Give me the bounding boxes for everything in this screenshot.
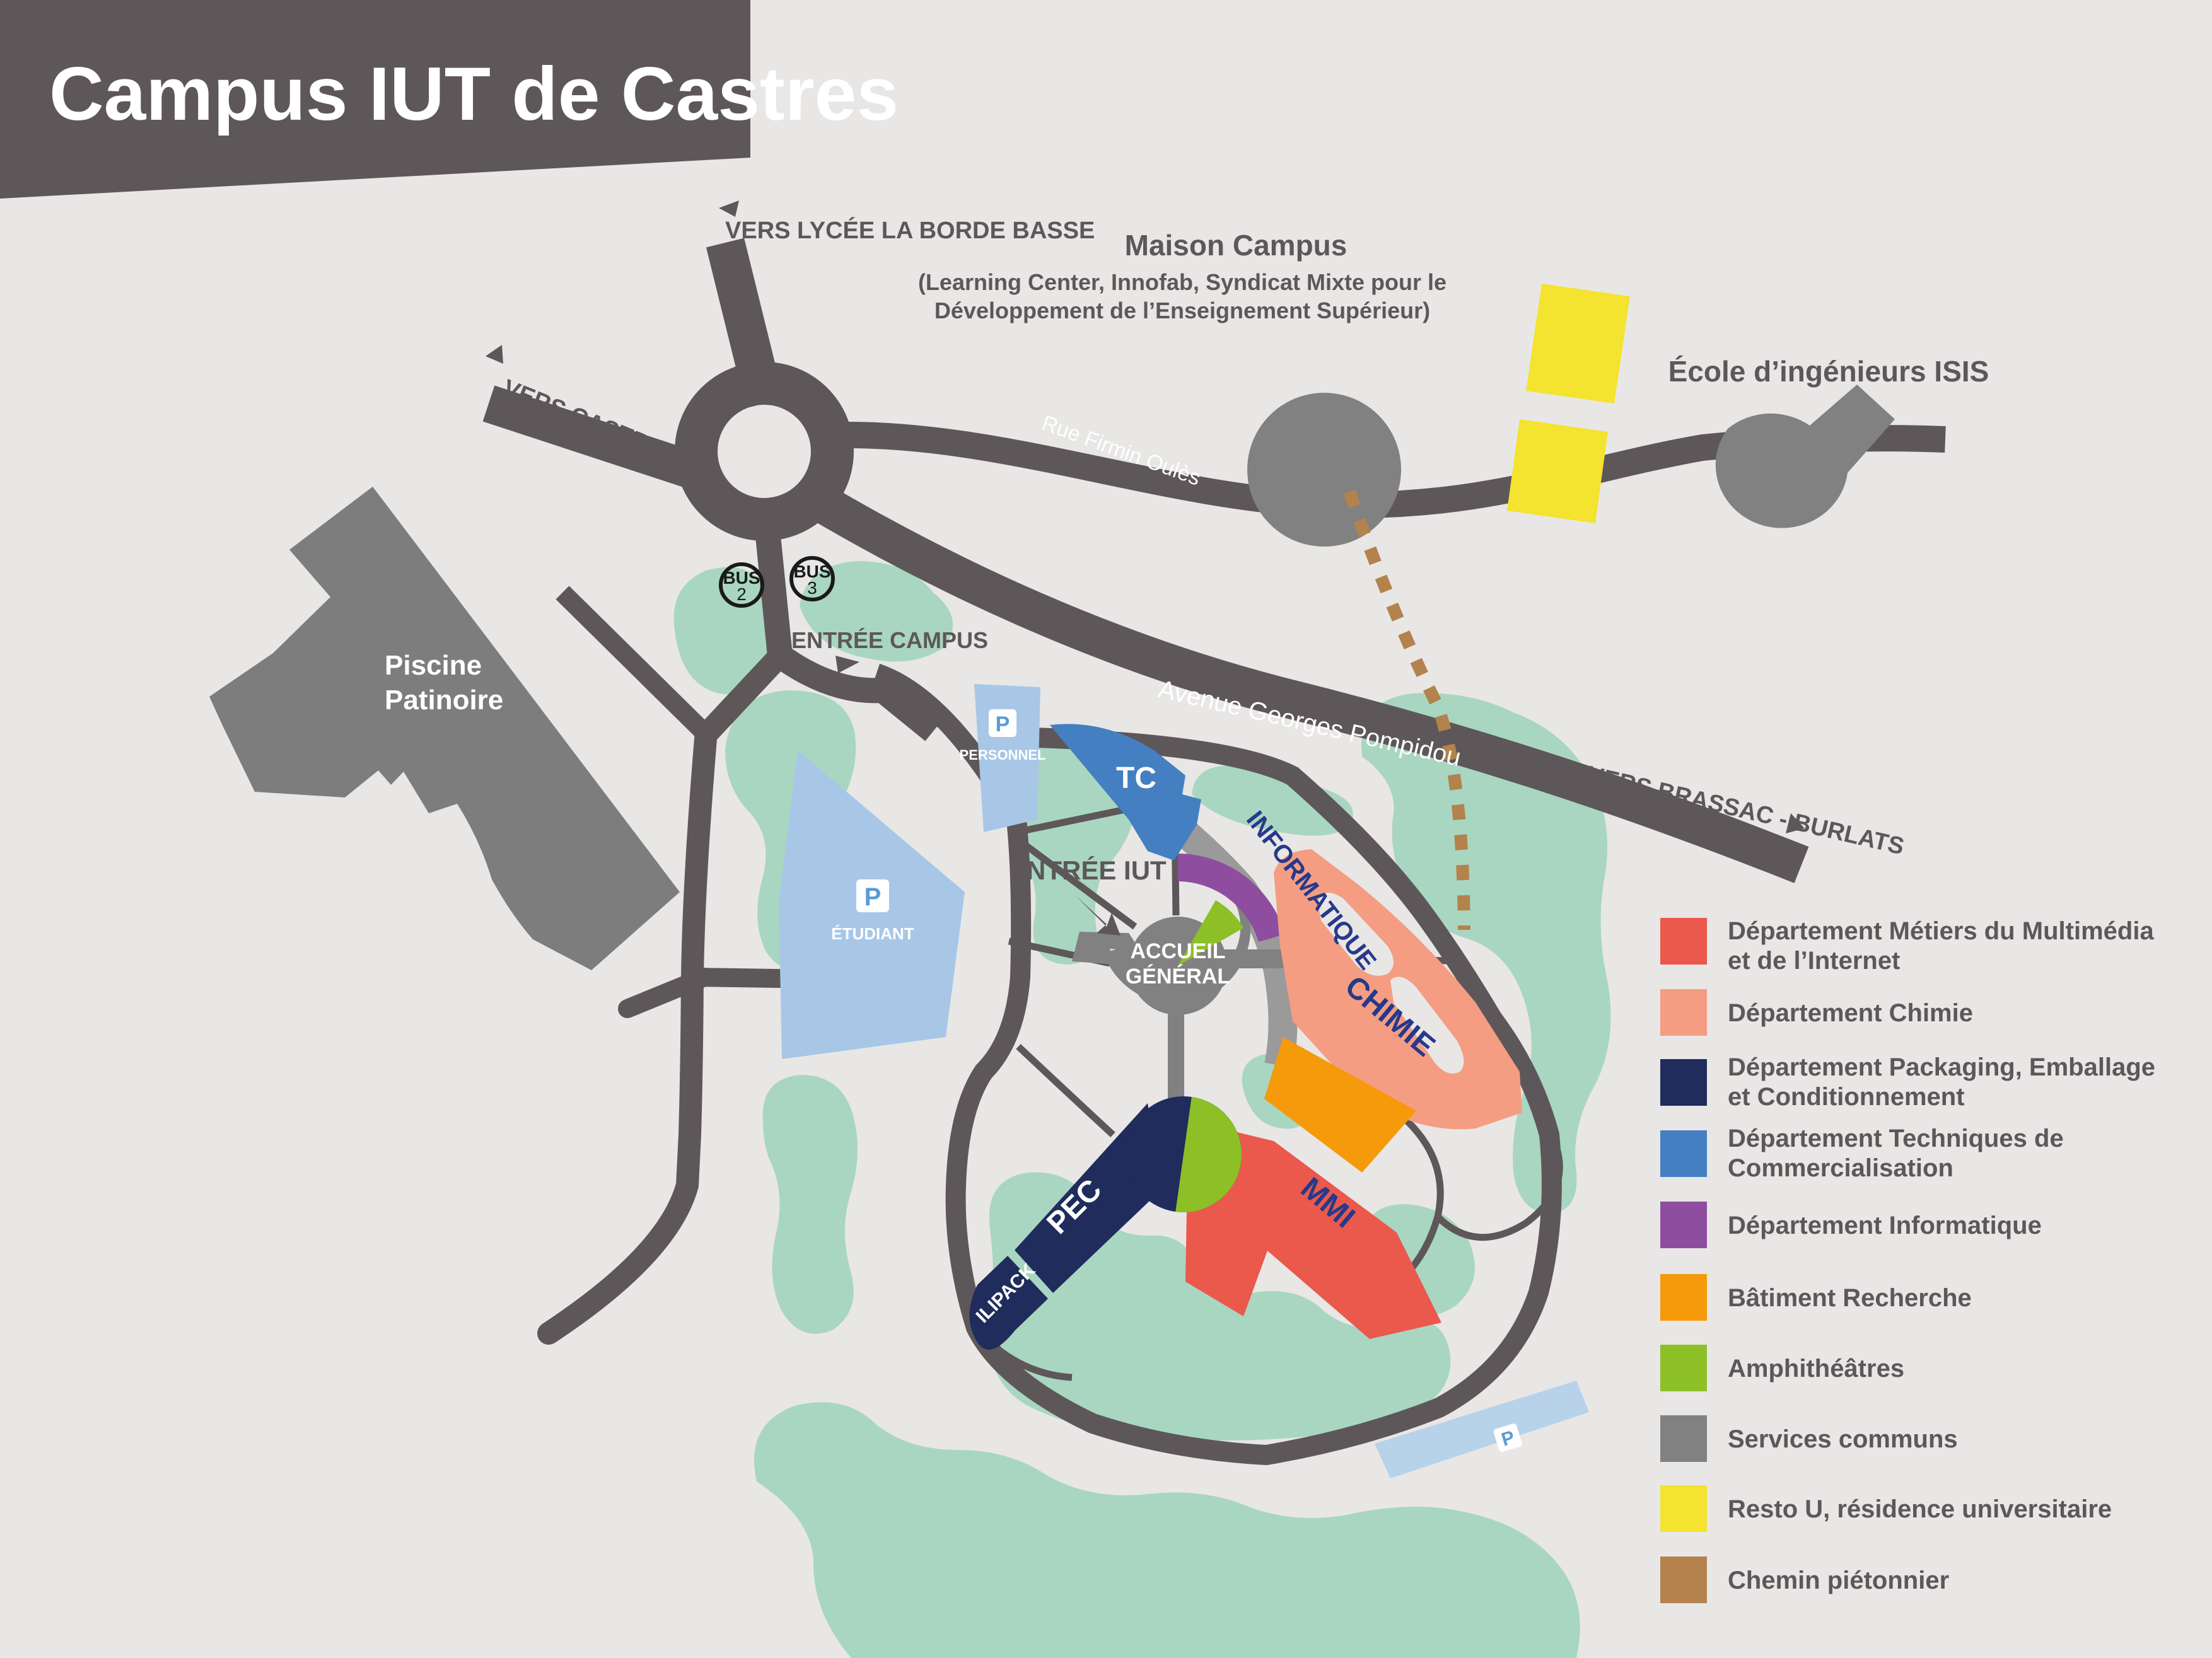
svg-text:VERS LYCÉE LA BORDE BASSE: VERS LYCÉE LA BORDE BASSE bbox=[725, 216, 1095, 244]
svg-text:Patinoire: Patinoire bbox=[385, 685, 503, 716]
svg-text:Département Chimie: Département Chimie bbox=[1728, 999, 1973, 1027]
svg-text:TC: TC bbox=[1116, 762, 1156, 795]
svg-text:Département Techniques de: Département Techniques de bbox=[1728, 1125, 2064, 1152]
svg-text:Chemin piétonnier: Chemin piétonnier bbox=[1728, 1567, 1949, 1594]
svg-text:Amphithéâtres: Amphithéâtres bbox=[1728, 1355, 1904, 1383]
svg-text:(Learning Center, Innofab, Syn: (Learning Center, Innofab, Syndicat Mixt… bbox=[918, 269, 1447, 295]
svg-text:Services communs: Services communs bbox=[1728, 1425, 1958, 1453]
svg-text:3: 3 bbox=[807, 578, 817, 598]
svg-text:PERSONNEL: PERSONNEL bbox=[960, 747, 1046, 763]
svg-text:Département Packaging, Emballa: Département Packaging, Emballage bbox=[1728, 1053, 2155, 1081]
svg-text:Maison Campus: Maison Campus bbox=[1125, 229, 1348, 262]
svg-text:ÉTUDIANT: ÉTUDIANT bbox=[831, 924, 914, 943]
svg-text:Département Informatique: Département Informatique bbox=[1728, 1212, 2042, 1239]
svg-text:ENTRÉE CAMPUS: ENTRÉE CAMPUS bbox=[791, 627, 988, 653]
svg-text:Développement de l’Enseignemen: Développement de l’Enseignement Supérieu… bbox=[934, 298, 1430, 323]
svg-text:2: 2 bbox=[736, 584, 747, 604]
svg-text:et Conditionnement: et Conditionnement bbox=[1728, 1083, 1965, 1111]
svg-text:ACCUEIL: ACCUEIL bbox=[1130, 939, 1225, 963]
svg-text:Resto U, résidence universitai: Resto U, résidence universitaire bbox=[1728, 1495, 2112, 1523]
svg-text:Commercialisation: Commercialisation bbox=[1728, 1154, 1953, 1182]
svg-text:et de l’Internet: et de l’Internet bbox=[1728, 947, 1900, 975]
svg-text:Bâtiment Recherche: Bâtiment Recherche bbox=[1728, 1284, 1972, 1312]
svg-text:Piscine: Piscine bbox=[385, 650, 482, 681]
svg-text:ENTRÉE IUT: ENTRÉE IUT bbox=[1009, 855, 1167, 885]
svg-text:Département Métiers du Multimé: Département Métiers du Multimédia bbox=[1728, 917, 2154, 945]
svg-text:P: P bbox=[864, 883, 882, 911]
svg-text:GÉNÉRAL: GÉNÉRAL bbox=[1126, 965, 1230, 988]
svg-text:P: P bbox=[996, 712, 1010, 736]
svg-text:Campus IUT de Castres: Campus IUT de Castres bbox=[49, 52, 899, 136]
svg-text:École d’ingénieurs ISIS: École d’ingénieurs ISIS bbox=[1668, 355, 1989, 388]
